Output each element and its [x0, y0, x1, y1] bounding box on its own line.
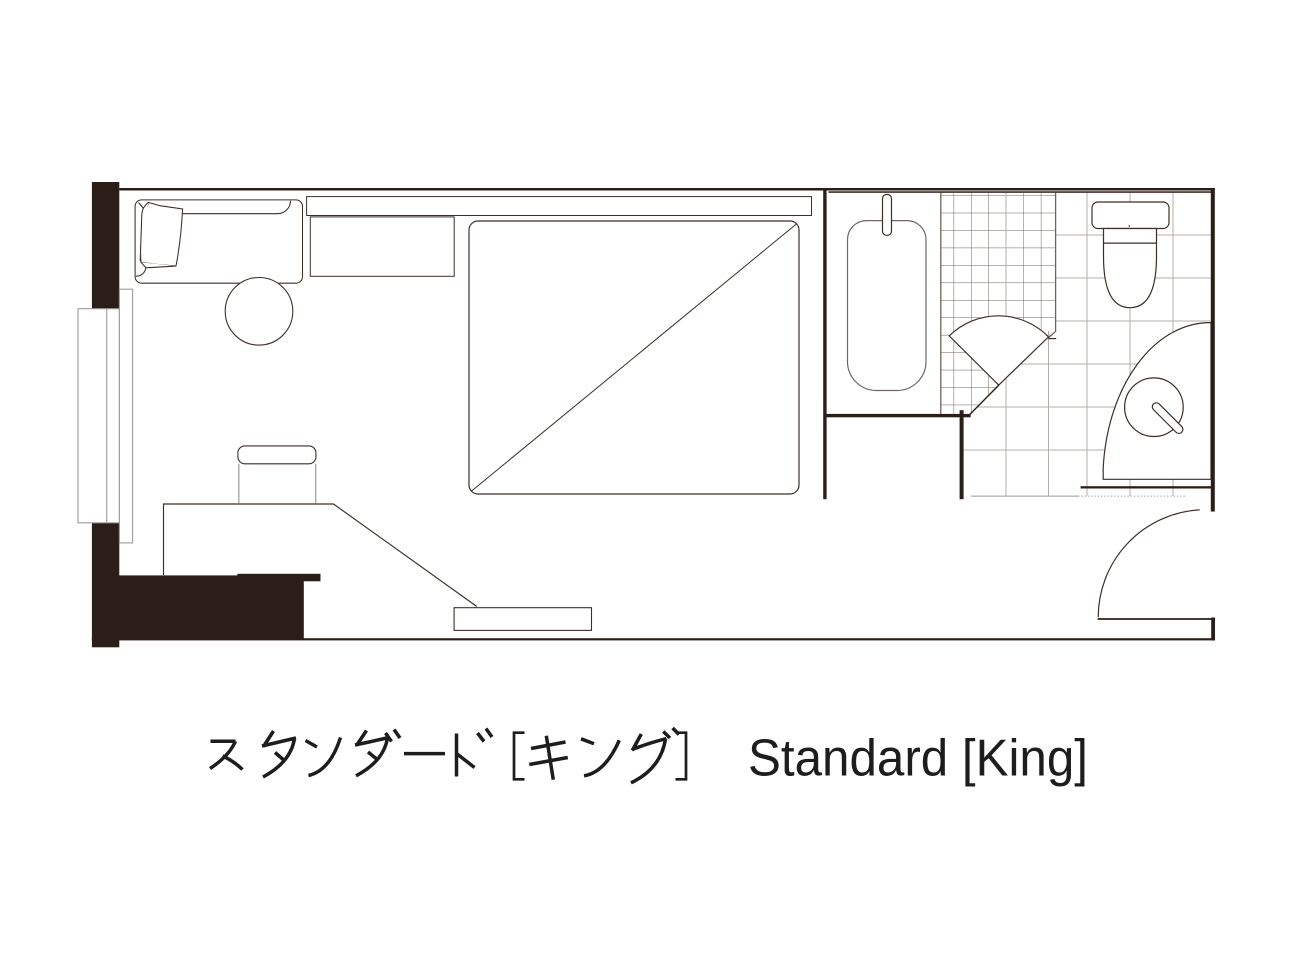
svg-text:Standard [King]: Standard [King]	[748, 729, 1088, 787]
